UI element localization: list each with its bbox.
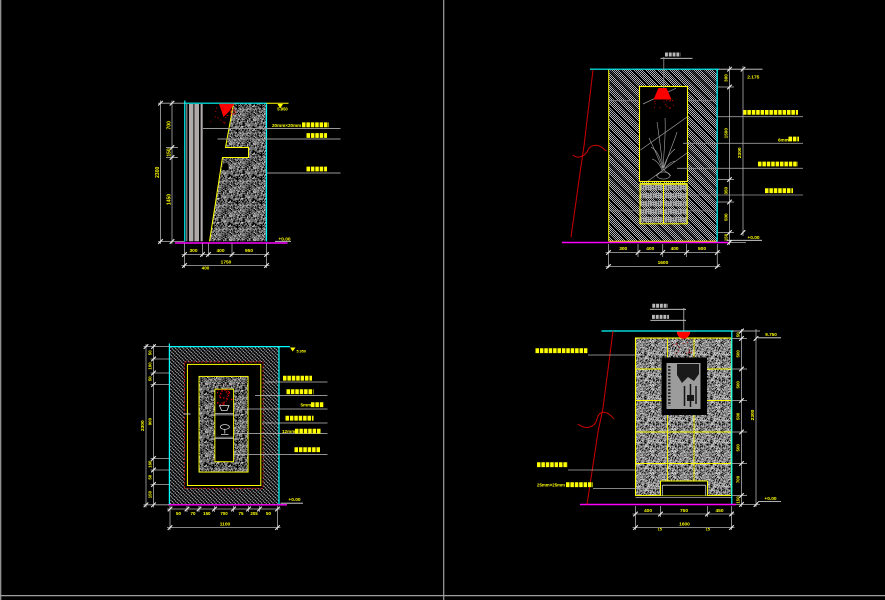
svg-text:2300: 2300 [737, 147, 743, 158]
svg-text:+0.00: +0.00 [764, 496, 776, 502]
svg-text:700: 700 [220, 511, 228, 516]
svg-text:400: 400 [671, 246, 679, 252]
svg-text:900: 900 [148, 417, 153, 425]
svg-text:2300: 2300 [140, 420, 146, 431]
svg-text:500: 500 [698, 246, 706, 252]
svg-text:700: 700 [166, 121, 172, 130]
svg-text:450: 450 [715, 508, 723, 514]
svg-text:350: 350 [724, 186, 729, 194]
svg-text:400: 400 [644, 508, 652, 514]
svg-text:500: 500 [736, 444, 741, 452]
svg-text:500: 500 [736, 412, 741, 420]
svg-text:20mm×20mm: 20mm×20mm [272, 123, 301, 128]
svg-text:1750: 1750 [221, 259, 232, 265]
svg-text:400: 400 [216, 248, 224, 254]
svg-text:150: 150 [736, 496, 741, 504]
svg-text:50: 50 [266, 511, 271, 516]
svg-text:150: 150 [203, 511, 211, 516]
svg-text:500: 500 [724, 213, 729, 221]
svg-text:15: 15 [658, 528, 662, 532]
svg-text:50: 50 [148, 474, 153, 479]
svg-text:5.950: 5.950 [277, 107, 288, 112]
svg-text:+0.00: +0.00 [288, 497, 300, 503]
svg-text:6mm: 6mm [778, 138, 789, 143]
svg-text:500: 500 [736, 381, 741, 389]
svg-text:300: 300 [619, 246, 627, 252]
svg-text:160: 160 [148, 362, 153, 370]
svg-text:50: 50 [148, 350, 153, 355]
svg-text:300: 300 [189, 248, 197, 254]
svg-text:25mm×25mm: 25mm×25mm [537, 483, 565, 488]
svg-text:400: 400 [646, 246, 654, 252]
svg-text:50: 50 [176, 511, 181, 516]
svg-text:500: 500 [736, 350, 741, 358]
svg-text:15: 15 [706, 528, 710, 532]
svg-text:5.950: 5.950 [297, 350, 307, 354]
svg-text:2.175: 2.175 [747, 75, 759, 81]
svg-text:50: 50 [736, 332, 741, 337]
svg-text:150: 150 [166, 148, 172, 157]
svg-text:+0.00: +0.00 [278, 237, 290, 243]
svg-text:1600: 1600 [658, 260, 669, 266]
svg-text:9.750: 9.750 [765, 332, 777, 337]
svg-text:75: 75 [239, 511, 244, 516]
svg-text:2300: 2300 [155, 167, 161, 178]
svg-text:1500: 1500 [724, 128, 729, 139]
svg-text:50: 50 [148, 376, 153, 381]
svg-text:2300: 2300 [750, 409, 756, 420]
svg-text:160: 160 [148, 460, 153, 468]
svg-text:150: 150 [148, 490, 153, 498]
svg-text:300: 300 [724, 74, 729, 82]
svg-text:70: 70 [191, 511, 196, 516]
svg-text:5mm: 5mm [301, 403, 312, 408]
svg-text:205: 205 [250, 511, 258, 516]
svg-text:950: 950 [245, 248, 253, 254]
svg-text:1450: 1450 [166, 194, 172, 205]
svg-text:1100: 1100 [220, 522, 231, 528]
svg-text:1600: 1600 [679, 521, 690, 527]
svg-text:700: 700 [736, 475, 741, 483]
svg-text:750: 750 [680, 508, 688, 514]
svg-text:400: 400 [202, 265, 210, 270]
svg-text:12mm: 12mm [282, 429, 295, 434]
